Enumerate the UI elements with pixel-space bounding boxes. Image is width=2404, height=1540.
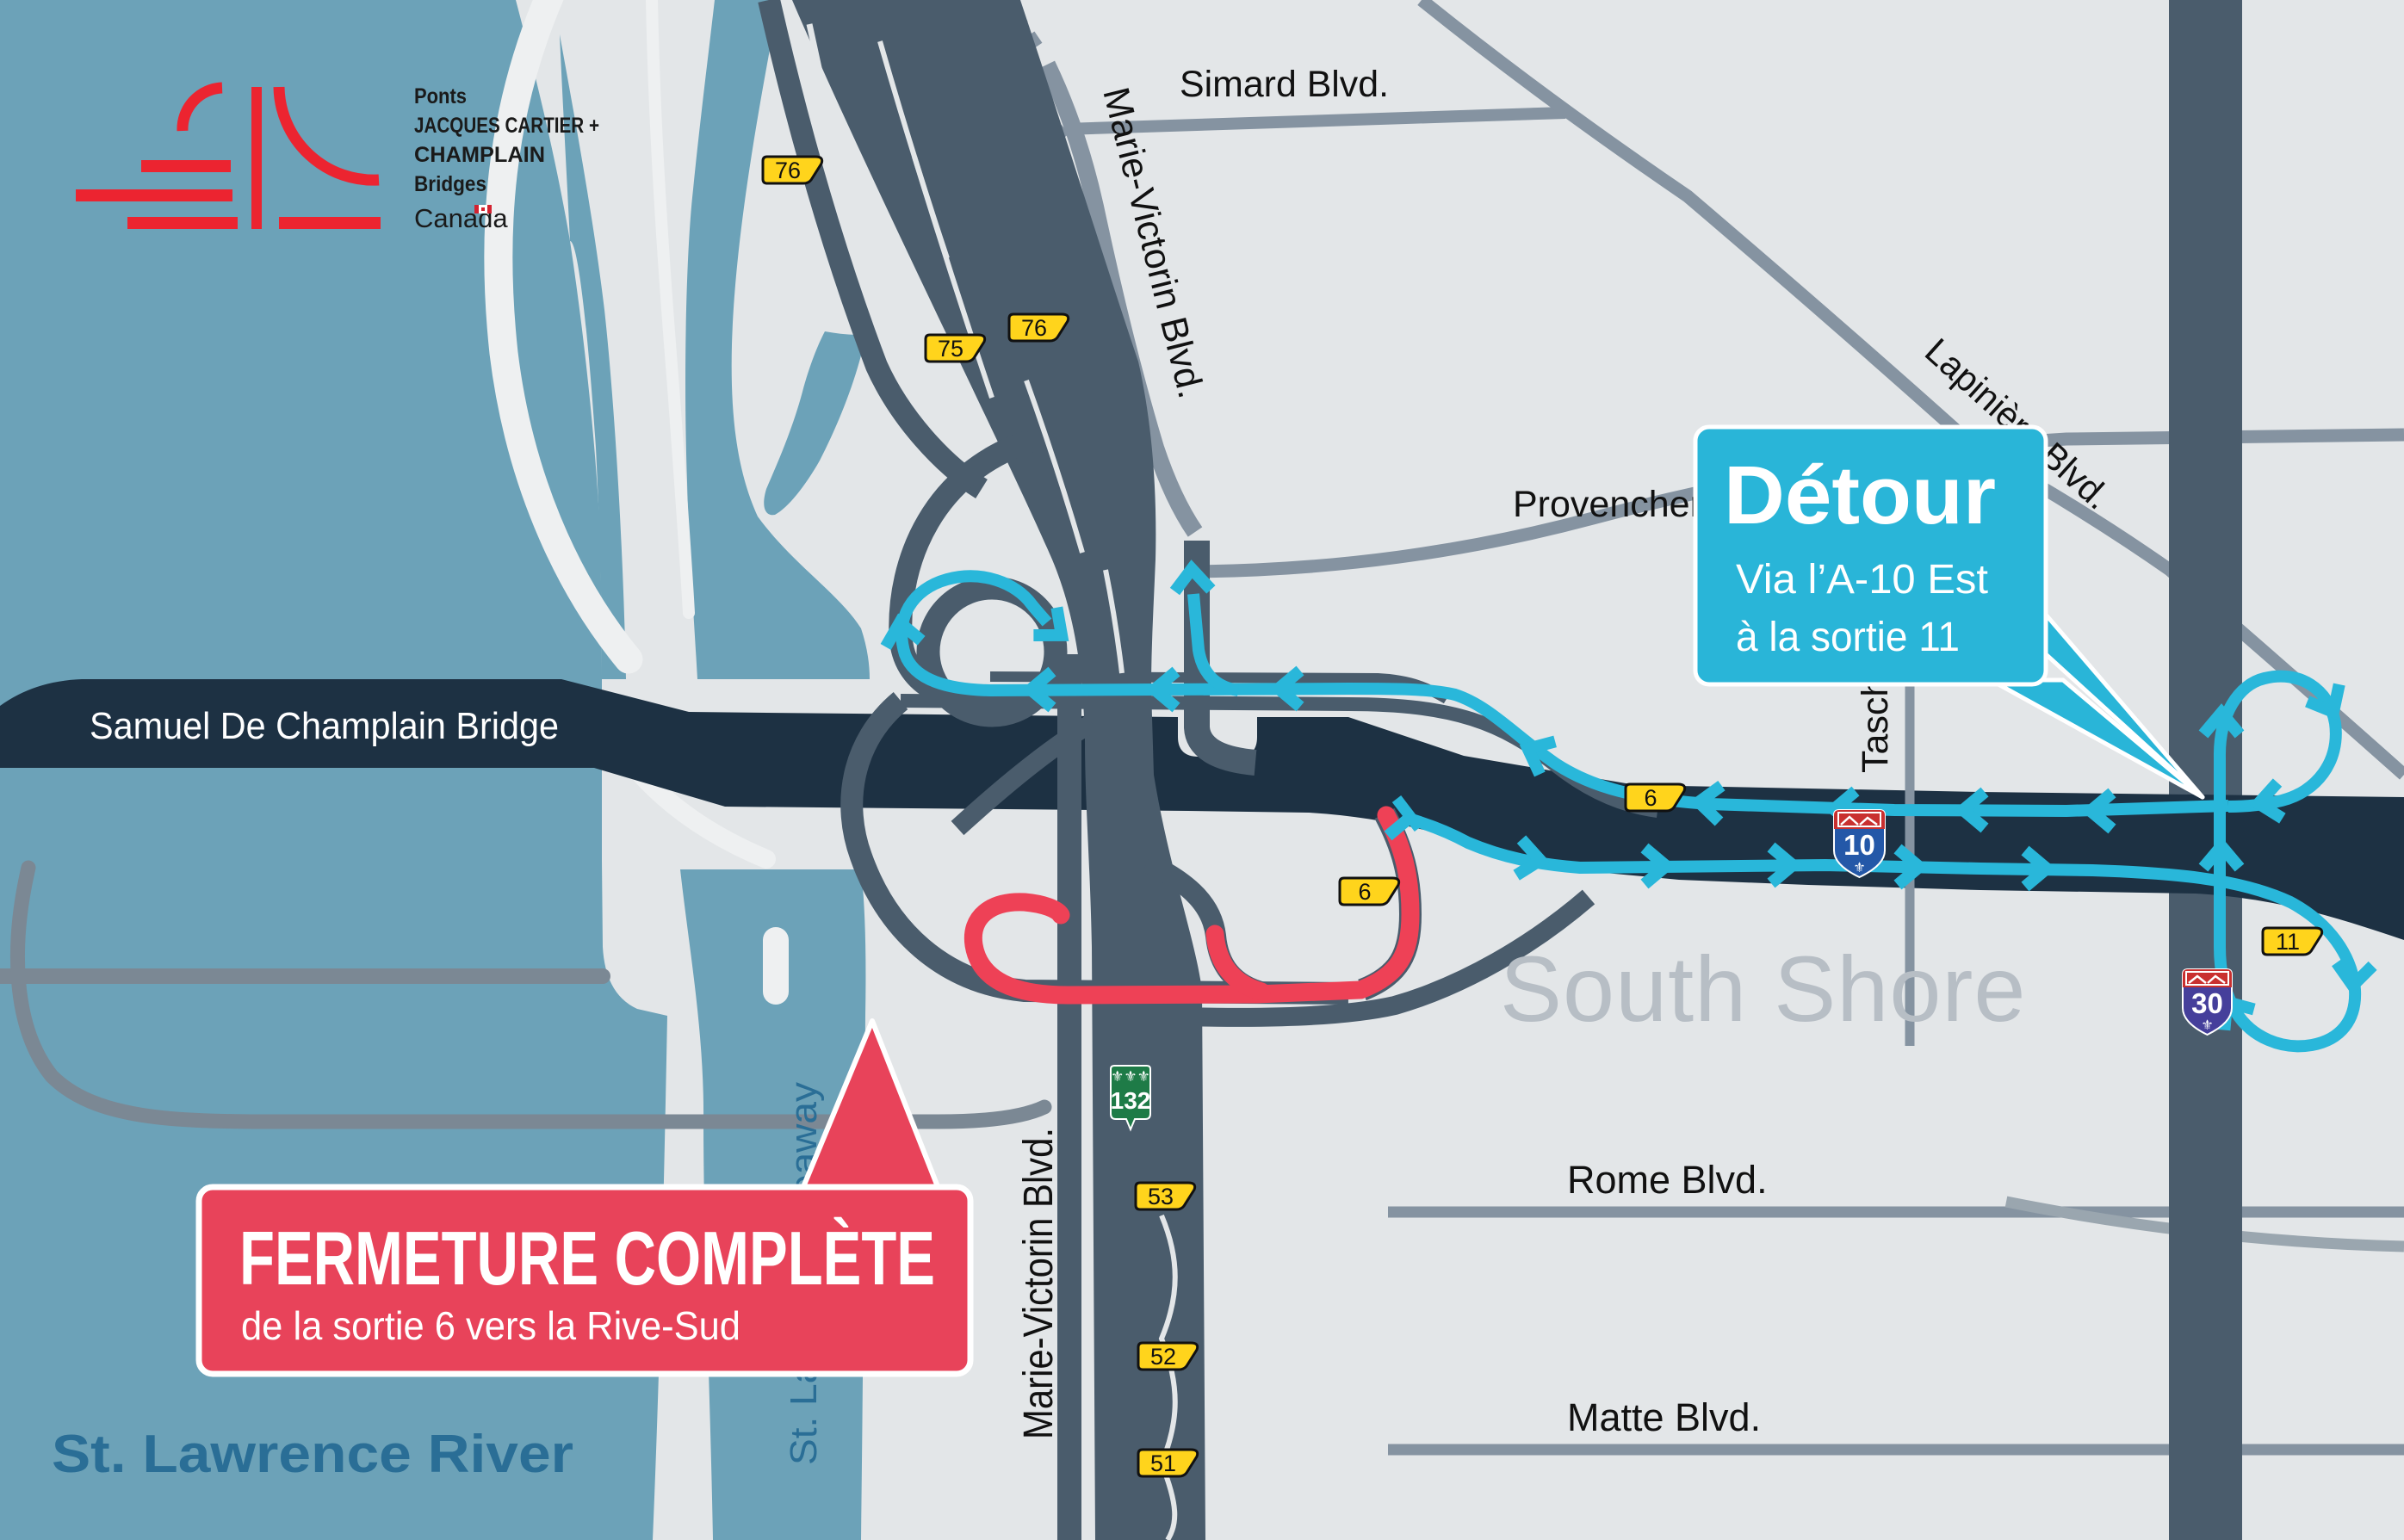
svg-text:75: 75 bbox=[938, 336, 963, 362]
svg-text:Rome Blvd.: Rome Blvd. bbox=[1567, 1158, 1768, 1202]
svg-text:JACQUES CARTIER +: JACQUES CARTIER + bbox=[414, 114, 599, 138]
svg-text:51: 51 bbox=[1150, 1450, 1176, 1476]
svg-text:⚜: ⚜ bbox=[1853, 861, 1865, 875]
svg-text:6: 6 bbox=[1358, 879, 1371, 905]
svg-text:10: 10 bbox=[1843, 829, 1875, 861]
svg-text:St. Lawrence River: St. Lawrence River bbox=[52, 1425, 573, 1484]
svg-text:Ponts: Ponts bbox=[414, 84, 467, 108]
svg-text:Simard Blvd.: Simard Blvd. bbox=[1180, 64, 1389, 105]
svg-text:Via l’A-10 Est: Via l’A-10 Est bbox=[1736, 557, 1988, 603]
svg-text:Samuel De Champlain Bridge: Samuel De Champlain Bridge bbox=[90, 705, 559, 747]
svg-text:à la sortie 11: à la sortie 11 bbox=[1736, 615, 1960, 660]
svg-text:Matte Blvd.: Matte Blvd. bbox=[1567, 1395, 1761, 1439]
svg-text:11: 11 bbox=[2276, 929, 2300, 955]
svg-text:Canada: Canada bbox=[414, 203, 508, 233]
svg-text:Détour: Détour bbox=[1724, 449, 1996, 541]
svg-text:FERMETURE COMPLÈTE: FERMETURE COMPLÈTE bbox=[239, 1215, 935, 1301]
svg-text:de la sortie 6 vers la Rive-Su: de la sortie 6 vers la Rive-Sud bbox=[241, 1303, 740, 1348]
svg-text:132: 132 bbox=[1111, 1087, 1151, 1114]
svg-text:30: 30 bbox=[2191, 987, 2223, 1019]
svg-text:52: 52 bbox=[1150, 1344, 1176, 1370]
svg-text:⚜: ⚜ bbox=[2201, 1018, 2213, 1033]
svg-text:South Shore: South Shore bbox=[1500, 937, 2026, 1041]
svg-text:76: 76 bbox=[775, 158, 801, 183]
svg-text:Bridges: Bridges bbox=[414, 172, 486, 196]
svg-text:6: 6 bbox=[1644, 785, 1657, 811]
svg-text:76: 76 bbox=[1021, 315, 1047, 341]
svg-text:CHAMPLAIN: CHAMPLAIN bbox=[414, 143, 545, 167]
svg-text:⚜⚜⚜: ⚜⚜⚜ bbox=[1111, 1068, 1150, 1085]
svg-text:Marie-Victorin Blvd.: Marie-Victorin Blvd. bbox=[1016, 1128, 1062, 1439]
svg-text:53: 53 bbox=[1148, 1184, 1174, 1209]
